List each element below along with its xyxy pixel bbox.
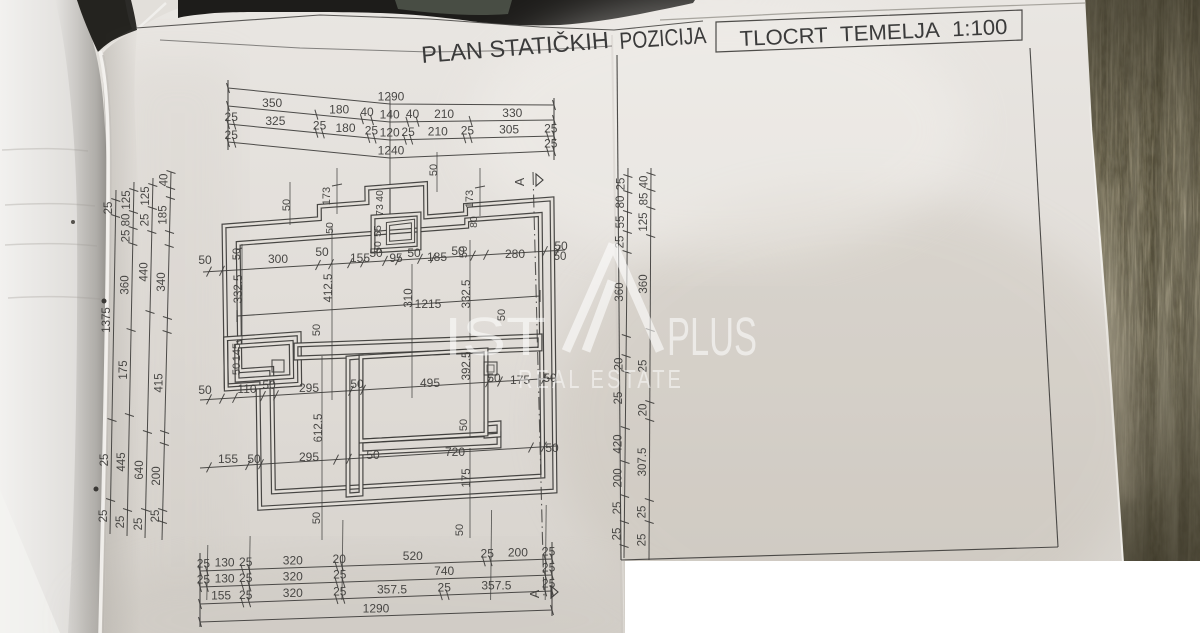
svg-text:40: 40 xyxy=(638,176,650,189)
svg-text:360: 360 xyxy=(638,274,650,293)
svg-text:25: 25 xyxy=(197,572,211,586)
svg-text:25: 25 xyxy=(115,516,127,529)
svg-text:360: 360 xyxy=(614,282,626,301)
svg-text:125: 125 xyxy=(121,190,133,209)
svg-text:445: 445 xyxy=(116,452,128,471)
svg-text:110: 110 xyxy=(237,382,256,396)
svg-text:357.5: 357.5 xyxy=(481,579,511,593)
svg-text:325: 325 xyxy=(265,114,285,128)
svg-text:40: 40 xyxy=(406,107,420,121)
svg-text:50: 50 xyxy=(428,164,440,176)
svg-text:25: 25 xyxy=(239,588,253,602)
svg-text:25: 25 xyxy=(150,510,162,523)
svg-text:20: 20 xyxy=(637,404,649,417)
svg-text:200: 200 xyxy=(612,468,624,487)
svg-text:125: 125 xyxy=(638,212,650,231)
svg-text:50: 50 xyxy=(247,452,261,466)
svg-text:320: 320 xyxy=(283,569,303,583)
svg-text:50: 50 xyxy=(350,377,364,391)
svg-text:50: 50 xyxy=(324,222,336,234)
svg-text:340: 340 xyxy=(156,272,168,291)
svg-text:50: 50 xyxy=(315,245,329,259)
svg-text:310: 310 xyxy=(403,288,415,307)
svg-text:25: 25 xyxy=(333,568,347,582)
svg-text:300: 300 xyxy=(268,252,288,266)
svg-text:307.5: 307.5 xyxy=(637,448,649,477)
svg-text:1290: 1290 xyxy=(378,90,405,104)
svg-text:332.5: 332.5 xyxy=(461,280,473,309)
svg-text:80: 80 xyxy=(615,196,627,209)
svg-text:357.5: 357.5 xyxy=(377,582,407,596)
svg-text:25: 25 xyxy=(612,502,624,515)
svg-text:350: 350 xyxy=(262,96,282,110)
svg-text:130: 130 xyxy=(215,556,235,570)
svg-text:50: 50 xyxy=(231,363,243,375)
svg-text:185: 185 xyxy=(427,250,447,264)
svg-text:130: 130 xyxy=(215,572,235,586)
svg-text:210: 210 xyxy=(434,107,454,121)
svg-text:50: 50 xyxy=(458,246,470,258)
svg-text:80: 80 xyxy=(121,214,133,227)
svg-text:200: 200 xyxy=(151,466,163,485)
svg-text:612.5: 612.5 xyxy=(313,414,325,443)
svg-text:25: 25 xyxy=(438,581,452,595)
svg-text:25: 25 xyxy=(99,454,111,467)
svg-text:50: 50 xyxy=(311,324,323,336)
svg-text:25: 25 xyxy=(542,561,556,575)
svg-text:720: 720 xyxy=(445,445,465,459)
svg-text:50: 50 xyxy=(366,448,380,462)
svg-text:50: 50 xyxy=(407,246,421,260)
svg-text:40: 40 xyxy=(374,190,386,202)
svg-text:25: 25 xyxy=(98,510,110,523)
svg-text:180: 180 xyxy=(335,121,355,135)
svg-text:25: 25 xyxy=(615,178,627,191)
svg-text:PLUS: PLUS xyxy=(667,307,757,367)
svg-text:1375: 1375 xyxy=(101,307,113,333)
svg-text:415: 415 xyxy=(153,373,165,392)
svg-text:332.5: 332.5 xyxy=(233,275,245,304)
svg-text:25: 25 xyxy=(313,119,327,133)
svg-text:A: A xyxy=(528,589,542,598)
svg-text:280: 280 xyxy=(505,247,525,261)
svg-text:25: 25 xyxy=(542,545,556,559)
svg-text:200: 200 xyxy=(508,546,528,560)
svg-text:85: 85 xyxy=(638,193,650,206)
svg-text:520: 520 xyxy=(403,549,423,563)
svg-text:25: 25 xyxy=(239,571,253,585)
svg-text:320: 320 xyxy=(283,586,303,600)
svg-text:305: 305 xyxy=(499,123,519,137)
svg-text:50: 50 xyxy=(281,199,293,211)
svg-text:25: 25 xyxy=(225,128,239,142)
svg-text:REAL ESTATE: REAL ESTATE xyxy=(518,364,684,394)
svg-text:50: 50 xyxy=(198,383,212,397)
svg-text:25: 25 xyxy=(197,556,211,570)
svg-text:50: 50 xyxy=(554,251,567,263)
svg-text:210: 210 xyxy=(428,124,448,138)
svg-text:360: 360 xyxy=(120,275,132,294)
svg-text:180: 180 xyxy=(329,103,349,117)
svg-text:20: 20 xyxy=(333,552,347,566)
svg-text:25: 25 xyxy=(365,124,379,138)
svg-text:50: 50 xyxy=(454,524,466,536)
svg-text:25: 25 xyxy=(103,202,115,215)
svg-text:295: 295 xyxy=(299,381,319,395)
svg-text:40: 40 xyxy=(360,105,374,119)
svg-text:640: 640 xyxy=(134,460,146,479)
svg-text:50: 50 xyxy=(545,441,559,455)
svg-text:145: 145 xyxy=(231,343,243,361)
svg-text:173: 173 xyxy=(464,190,476,208)
svg-text:1240: 1240 xyxy=(378,144,405,158)
svg-text:155: 155 xyxy=(211,589,231,603)
svg-text:80: 80 xyxy=(468,216,480,228)
svg-text:55: 55 xyxy=(615,216,627,229)
svg-text:185: 185 xyxy=(157,205,169,224)
svg-text:125: 125 xyxy=(140,186,152,205)
svg-text:25: 25 xyxy=(544,137,558,151)
svg-text:73: 73 xyxy=(374,204,386,216)
svg-text:25: 25 xyxy=(239,555,253,569)
svg-text:420: 420 xyxy=(613,434,625,453)
svg-text:320: 320 xyxy=(283,553,303,567)
svg-text:50: 50 xyxy=(311,512,323,524)
svg-text:25: 25 xyxy=(401,125,415,139)
svg-text:50: 50 xyxy=(198,253,212,267)
svg-text:495: 495 xyxy=(420,376,440,390)
svg-text:IST: IST xyxy=(444,307,546,367)
svg-text:50: 50 xyxy=(262,378,276,392)
svg-text:25: 25 xyxy=(461,124,475,138)
svg-text:25: 25 xyxy=(133,518,145,531)
svg-text:25: 25 xyxy=(333,584,347,598)
svg-text:50: 50 xyxy=(458,419,470,431)
svg-text:95: 95 xyxy=(389,251,403,265)
svg-text:155: 155 xyxy=(218,452,238,466)
svg-text:440: 440 xyxy=(138,262,150,281)
svg-text:412.5: 412.5 xyxy=(323,274,335,303)
svg-text:25: 25 xyxy=(637,534,649,547)
svg-text:40: 40 xyxy=(158,174,170,187)
svg-text:155: 155 xyxy=(350,251,370,265)
svg-text:175: 175 xyxy=(118,360,130,379)
svg-text:25: 25 xyxy=(120,230,132,243)
svg-text:25: 25 xyxy=(637,506,649,519)
svg-text:173: 173 xyxy=(321,187,333,205)
svg-text:A: A xyxy=(513,177,527,186)
svg-text:740: 740 xyxy=(434,564,454,578)
svg-text:25: 25 xyxy=(140,214,152,227)
svg-text:25: 25 xyxy=(481,547,495,561)
svg-text:1215: 1215 xyxy=(415,297,442,311)
svg-text:25: 25 xyxy=(544,122,558,136)
svg-text:295: 295 xyxy=(299,450,319,464)
svg-text:330: 330 xyxy=(502,106,522,120)
svg-text:55: 55 xyxy=(372,225,384,237)
svg-text:50: 50 xyxy=(487,371,501,385)
svg-text:175: 175 xyxy=(461,468,473,487)
svg-text:1290: 1290 xyxy=(363,602,390,616)
svg-text:25: 25 xyxy=(225,110,239,124)
svg-text:25: 25 xyxy=(612,528,624,541)
svg-text:50: 50 xyxy=(372,241,384,253)
